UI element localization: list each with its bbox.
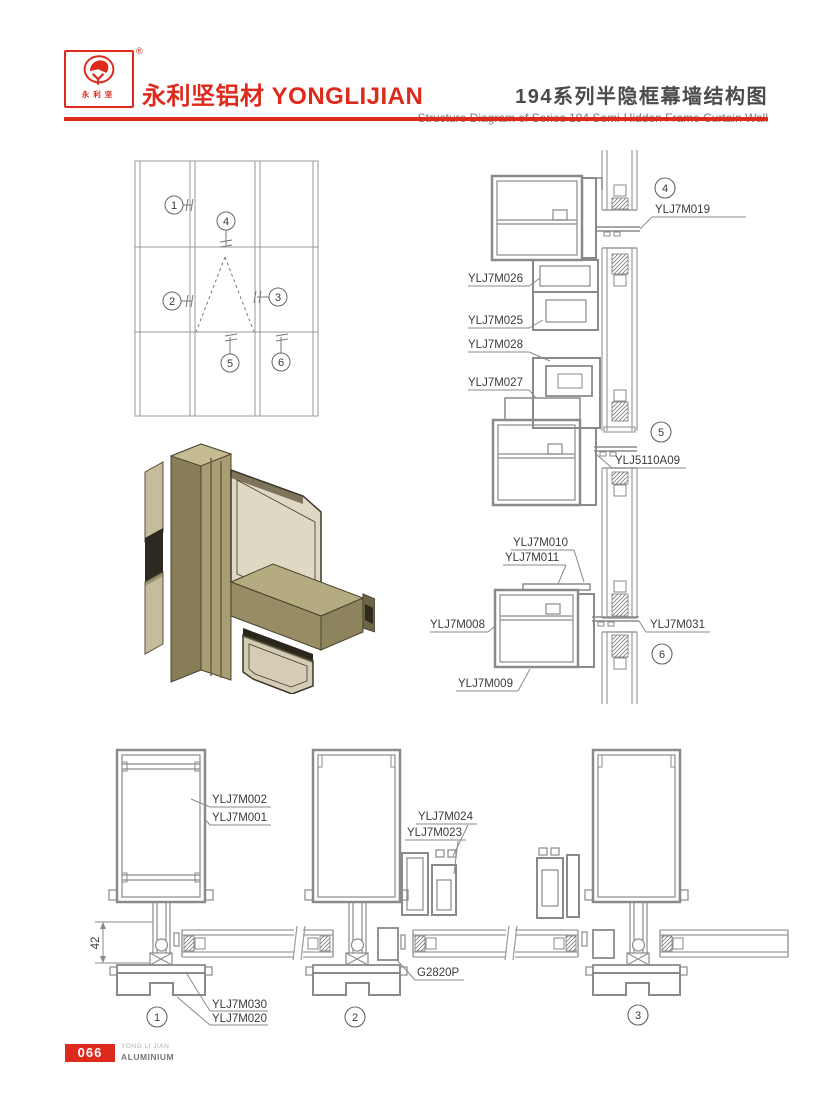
detail-3-annotations: 3 [628,1005,648,1025]
profile-3d-render [125,432,375,694]
svg-text:2: 2 [169,296,175,308]
detail-3-profiles [537,750,688,995]
svg-text:6: 6 [278,357,284,369]
callout-2: 2 [163,292,181,310]
page-number-badge: 066 [65,1044,115,1062]
brand-logo: 永利坚 [64,50,134,108]
part-label-ylj7m031: YLJ7M031 [650,619,705,631]
opening-sash-symbol [196,257,254,332]
callout-4: 4 [217,212,235,230]
part-label-ylj7m019: YLJ7M019 [655,204,710,216]
part-label-ylj7m027: YLJ7M027 [468,377,523,389]
elevation-callouts: 1 4 2 3 5 6 [163,196,290,372]
part-label-ylj7m008: YLJ7M008 [430,619,485,631]
footer-brand-name: YONG LI JIAN [121,1044,174,1051]
horizontal-section-details: 42 YLJ7M002 YLJ7M001 YLJ7M030 YLJ7M020 1 [60,740,800,1035]
callout-1: 1 [154,1012,160,1024]
part-label-ylj7m023: YLJ7M023 [407,827,462,839]
detail-2-annotations: YLJ7M024 YLJ7M023 G2820P 2 [345,811,477,1027]
logo-emblem-icon [78,54,120,90]
glass-band-spacers [184,936,683,951]
part-label-ylj7m026: YLJ7M026 [468,273,523,285]
glass-unit-horizontal [182,930,788,957]
part-label-ylj7m028: YLJ7M028 [468,339,523,351]
detail-1-profiles [109,750,213,995]
part-label-ylj5110a09: YLJ5110A09 [615,455,680,467]
part-label-ylj7m030: YLJ7M030 [212,999,267,1011]
part-label-g2820p: G2820P [417,967,460,979]
detail-2-profiles [305,750,456,995]
svg-text:3: 3 [275,292,281,304]
callout-3: 3 [269,288,287,306]
title-chinese: 194系列半隐框幕墙结构图 [418,80,768,109]
callout-4: 4 [662,183,668,195]
svg-text:4: 4 [223,216,229,228]
part-label-ylj7m001: YLJ7M001 [212,812,267,824]
dimension-42: 42 [90,922,153,963]
part-label-ylj7m010: YLJ7M010 [513,537,568,549]
part-label-ylj7m009: YLJ7M009 [458,678,513,690]
footer-brand-aluminium: ALUMINIUM [121,1053,174,1062]
catalog-page: 永利坚 ® 永利坚铝材 YONGLIJIAN 194系列半隐框幕墙结构图 Str… [0,0,817,1101]
registered-trademark: ® [136,46,143,56]
elevation-diagram: 1 4 2 3 5 6 [130,155,330,425]
callout-3: 3 [635,1010,641,1022]
dimension-42-label: 42 [90,937,102,950]
svg-text:1: 1 [171,200,177,212]
callout-2: 2 [352,1012,358,1024]
part-label-ylj7m024: YLJ7M024 [418,811,474,823]
part-label-ylj7m002: YLJ7M002 [212,794,267,806]
footer-brand: YONG LI JIAN ALUMINIUM [121,1044,174,1061]
vertical-section-details: YLJ7M019 4 YLJ7M026 YLJ7M025 [428,148,790,710]
part-label-ylj7m025: YLJ7M025 [468,315,523,327]
callout-5: 5 [221,354,239,372]
callout-6: 6 [659,649,665,661]
part-label-ylj7m020: YLJ7M020 [212,1013,267,1025]
header-divider [64,117,768,121]
callout-5: 5 [658,427,664,439]
callout-6: 6 [272,353,290,371]
part-label-ylj7m011: YLJ7M011 [505,552,559,564]
callout-1: 1 [165,196,183,214]
logo-characters: 永利坚 [66,89,132,100]
svg-text:5: 5 [227,358,233,370]
brand-name: 永利坚铝材 YONGLIJIAN [142,76,423,111]
